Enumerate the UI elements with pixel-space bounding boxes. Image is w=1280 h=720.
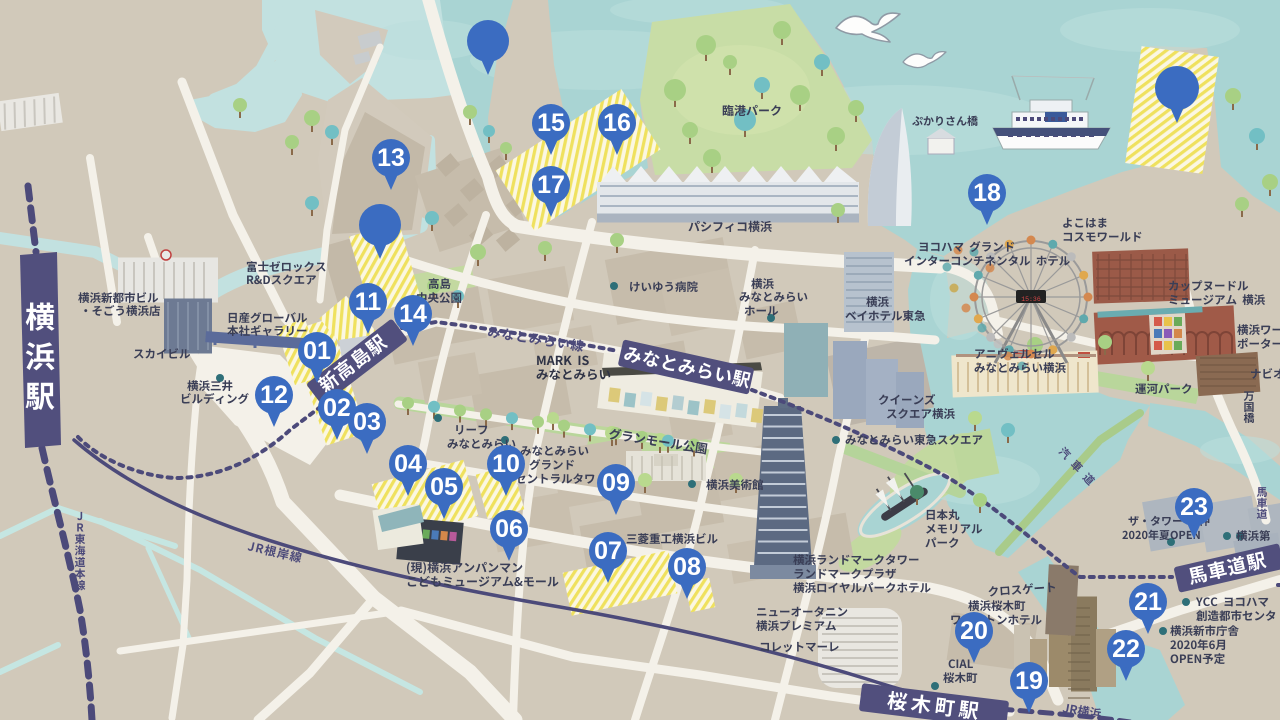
svg-text:09: 09	[602, 469, 630, 497]
svg-text:06: 06	[495, 515, 523, 543]
svg-text:19: 19	[1015, 667, 1043, 695]
svg-text:10: 10	[492, 450, 520, 478]
svg-text:07: 07	[594, 537, 622, 565]
svg-text:11: 11	[355, 288, 382, 316]
svg-text:15: 15	[537, 109, 565, 137]
svg-text:13: 13	[377, 144, 405, 172]
svg-text:08: 08	[673, 553, 701, 581]
svg-text:20: 20	[960, 617, 988, 645]
svg-text:03: 03	[353, 408, 381, 436]
svg-text:02: 02	[323, 394, 351, 422]
svg-text:04: 04	[394, 450, 422, 478]
svg-text:14: 14	[399, 300, 427, 328]
svg-text:23: 23	[1180, 493, 1208, 521]
svg-text:21: 21	[1134, 588, 1162, 616]
svg-text:12: 12	[260, 381, 288, 409]
svg-text:15:36: 15:36	[1021, 296, 1041, 303]
svg-text:16: 16	[603, 109, 631, 137]
svg-text:01: 01	[303, 337, 331, 365]
svg-text:22: 22	[1112, 635, 1140, 663]
svg-text:05: 05	[430, 473, 458, 501]
svg-text:17: 17	[537, 171, 565, 199]
svg-text:18: 18	[973, 179, 1001, 207]
